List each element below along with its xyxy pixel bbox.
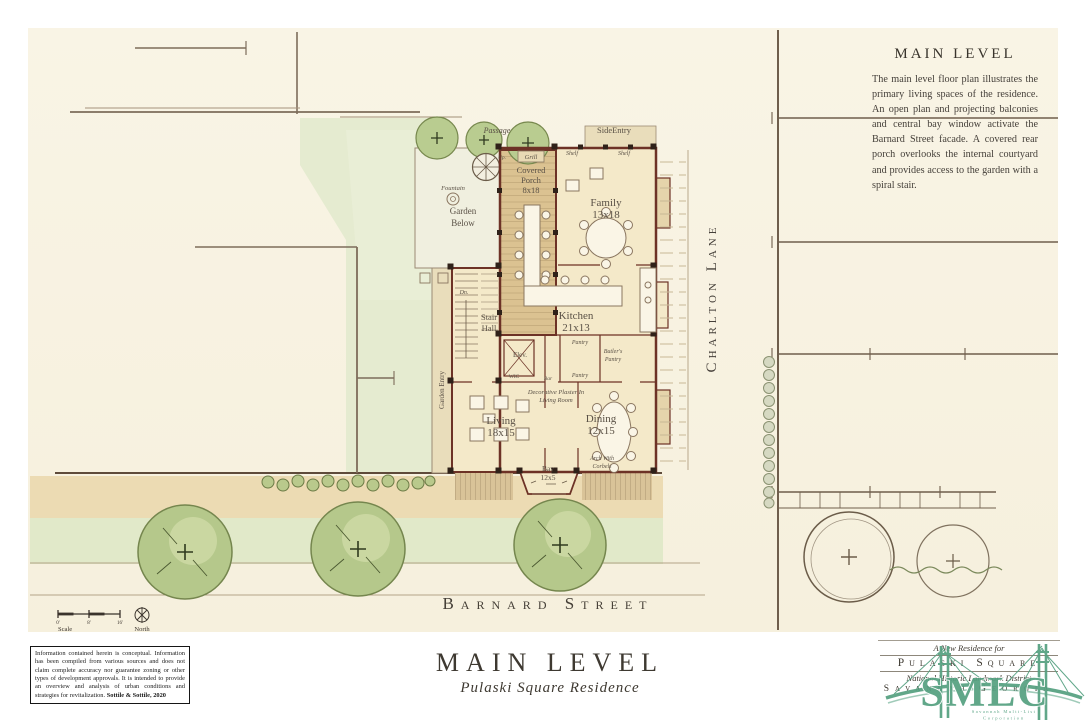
- label-grill: Grill: [525, 154, 538, 161]
- label-family: 13x18: [592, 209, 620, 221]
- label-bar: Bar: [544, 376, 553, 382]
- label-stair-hall: Hall: [482, 323, 497, 333]
- label-fountain: Fountain: [440, 185, 465, 192]
- svg-text:8': 8': [87, 621, 91, 626]
- label-family: Family: [590, 197, 622, 209]
- sheet-title-main: MAIN LEVEL: [410, 648, 690, 678]
- label-pantry: Pantry: [571, 340, 589, 346]
- street-tree: [311, 502, 405, 596]
- label-arch: Arch With: [589, 456, 614, 462]
- label-up: Up.: [498, 155, 506, 161]
- neighbor-trees-right: [804, 512, 1002, 602]
- label-covered-porch: Covered: [517, 165, 547, 175]
- sheet-title: MAIN LEVEL Pulaski Square Residence: [410, 648, 690, 697]
- label-garden-below: Garden: [450, 206, 477, 216]
- drawing-sheet: Passage SideEntry Grill Shelf Shelf Cove…: [0, 0, 1086, 724]
- label-shelf: Shelf: [566, 150, 579, 157]
- smlc-logo: SMLC Savannah Multi-List Corporation: [882, 640, 1086, 724]
- label-dining: Dining: [586, 413, 617, 425]
- logo-caption: Corporation: [983, 716, 1025, 721]
- label-wic: WIC: [509, 374, 520, 380]
- label-side-entry: SideEntry: [597, 125, 632, 135]
- label-covered-porch: Porch: [521, 175, 542, 185]
- label-dining: 12x15: [587, 425, 615, 437]
- label-elev: Elev.: [513, 351, 527, 359]
- street-tree: [514, 499, 606, 591]
- logo-caption: Savannah Multi-List: [972, 709, 1037, 714]
- panel-title: MAIN LEVEL: [872, 46, 1038, 63]
- svg-text:North: North: [134, 626, 150, 633]
- label-covered-porch: 8x18: [523, 185, 540, 195]
- label-passage: Passage: [483, 126, 511, 135]
- street-tree: [138, 505, 232, 599]
- label-kitchen: 21x13: [562, 322, 590, 334]
- scale-bar: 0' 8' 16' Scale: [56, 610, 123, 633]
- label-bay: Bay: [542, 464, 554, 473]
- label-dn: Dn.: [459, 290, 469, 296]
- label-garden-below: Below: [451, 218, 475, 228]
- main-level-description-panel: MAIN LEVEL The main level floor plan ill…: [872, 46, 1038, 193]
- label-garden-entry: Garden Entry: [438, 371, 446, 409]
- label-living: 18x15: [487, 427, 515, 439]
- svg-text:16': 16': [117, 621, 123, 626]
- label-pantry: Pantry: [571, 373, 589, 379]
- label-butlers-pantry: Pantry: [604, 357, 622, 363]
- label-butlers-pantry: Butler's: [604, 349, 623, 355]
- scale-label: Scale: [58, 626, 72, 633]
- barnard-street-label: Barnard Street: [442, 594, 653, 613]
- label-arch: Corbels: [592, 464, 612, 470]
- label-decorative-plaster: Decorative Plaster In: [527, 389, 584, 396]
- disclaimer-credit: Sottile & Sottile, 2020: [107, 692, 166, 699]
- north-arrow-icon: North: [134, 607, 150, 633]
- neighbor-hedge-right: [764, 357, 775, 509]
- label-living: Living: [486, 415, 516, 427]
- spiral-stair: [473, 154, 500, 181]
- label-bay: 12x5: [541, 473, 556, 482]
- disclaimer-note: Information contained herein is conceptu…: [30, 646, 190, 704]
- label-decorative-plaster: Living Room: [538, 397, 573, 404]
- label-kitchen: Kitchen: [559, 310, 594, 322]
- panel-body: The main level floor plan illustrates th…: [872, 72, 1038, 193]
- label-shelf: Shelf: [618, 150, 631, 157]
- charlton-lane-label: Charlton Lane: [704, 224, 720, 373]
- sheet-title-sub: Pulaski Square Residence: [410, 680, 690, 697]
- label-stair-hall: Stair: [481, 312, 497, 322]
